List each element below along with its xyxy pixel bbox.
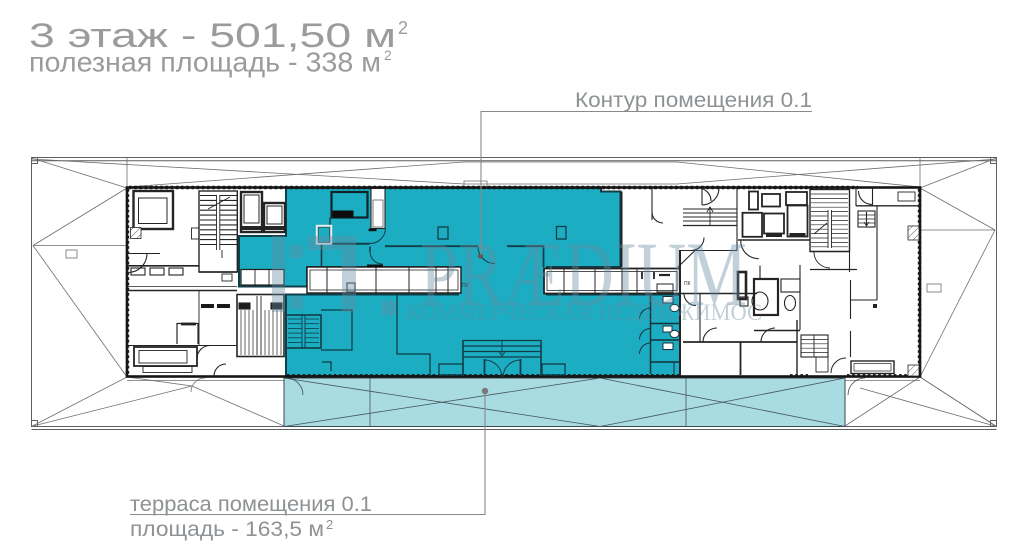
svg-text:полезная площадь - 338 м: полезная площадь - 338 м bbox=[29, 47, 381, 78]
svg-text:2: 2 bbox=[326, 517, 333, 532]
svg-text:площадь - 163,5 м: площадь - 163,5 м bbox=[130, 518, 324, 541]
svg-text:2: 2 bbox=[398, 18, 408, 38]
svg-text:КОММЕРЧЕСКАЯ НЕДВИЖИМОС: КОММЕРЧЕСКАЯ НЕДВИЖИМОС bbox=[406, 300, 762, 325]
svg-text:Контур помещения 0.1: Контур помещения 0.1 bbox=[575, 89, 812, 112]
svg-text:2: 2 bbox=[384, 47, 392, 63]
svg-text:терраса помещения 0.1: терраса помещения 0.1 bbox=[130, 493, 372, 516]
